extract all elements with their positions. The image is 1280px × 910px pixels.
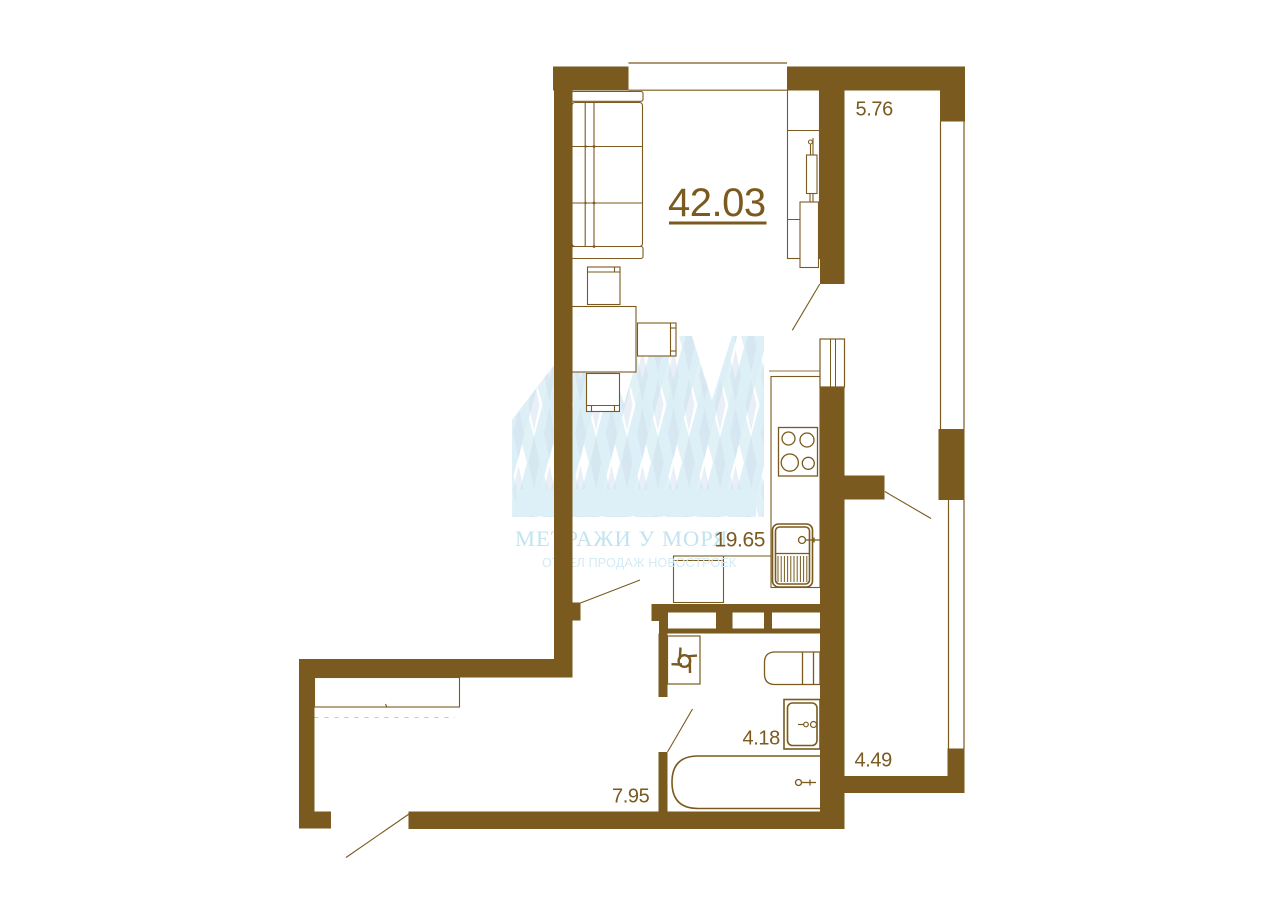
svg-text:42.03: 42.03 bbox=[668, 181, 766, 225]
svg-text:4.49: 4.49 bbox=[855, 750, 893, 772]
svg-text:7.95: 7.95 bbox=[612, 786, 650, 808]
svg-text:4.18: 4.18 bbox=[743, 728, 781, 750]
svg-text:МЕТРАЖИ У МОРЯ: МЕТРАЖИ У МОРЯ bbox=[515, 526, 728, 551]
svg-text:5.76: 5.76 bbox=[856, 99, 894, 121]
svg-text:19.65: 19.65 bbox=[715, 529, 766, 552]
